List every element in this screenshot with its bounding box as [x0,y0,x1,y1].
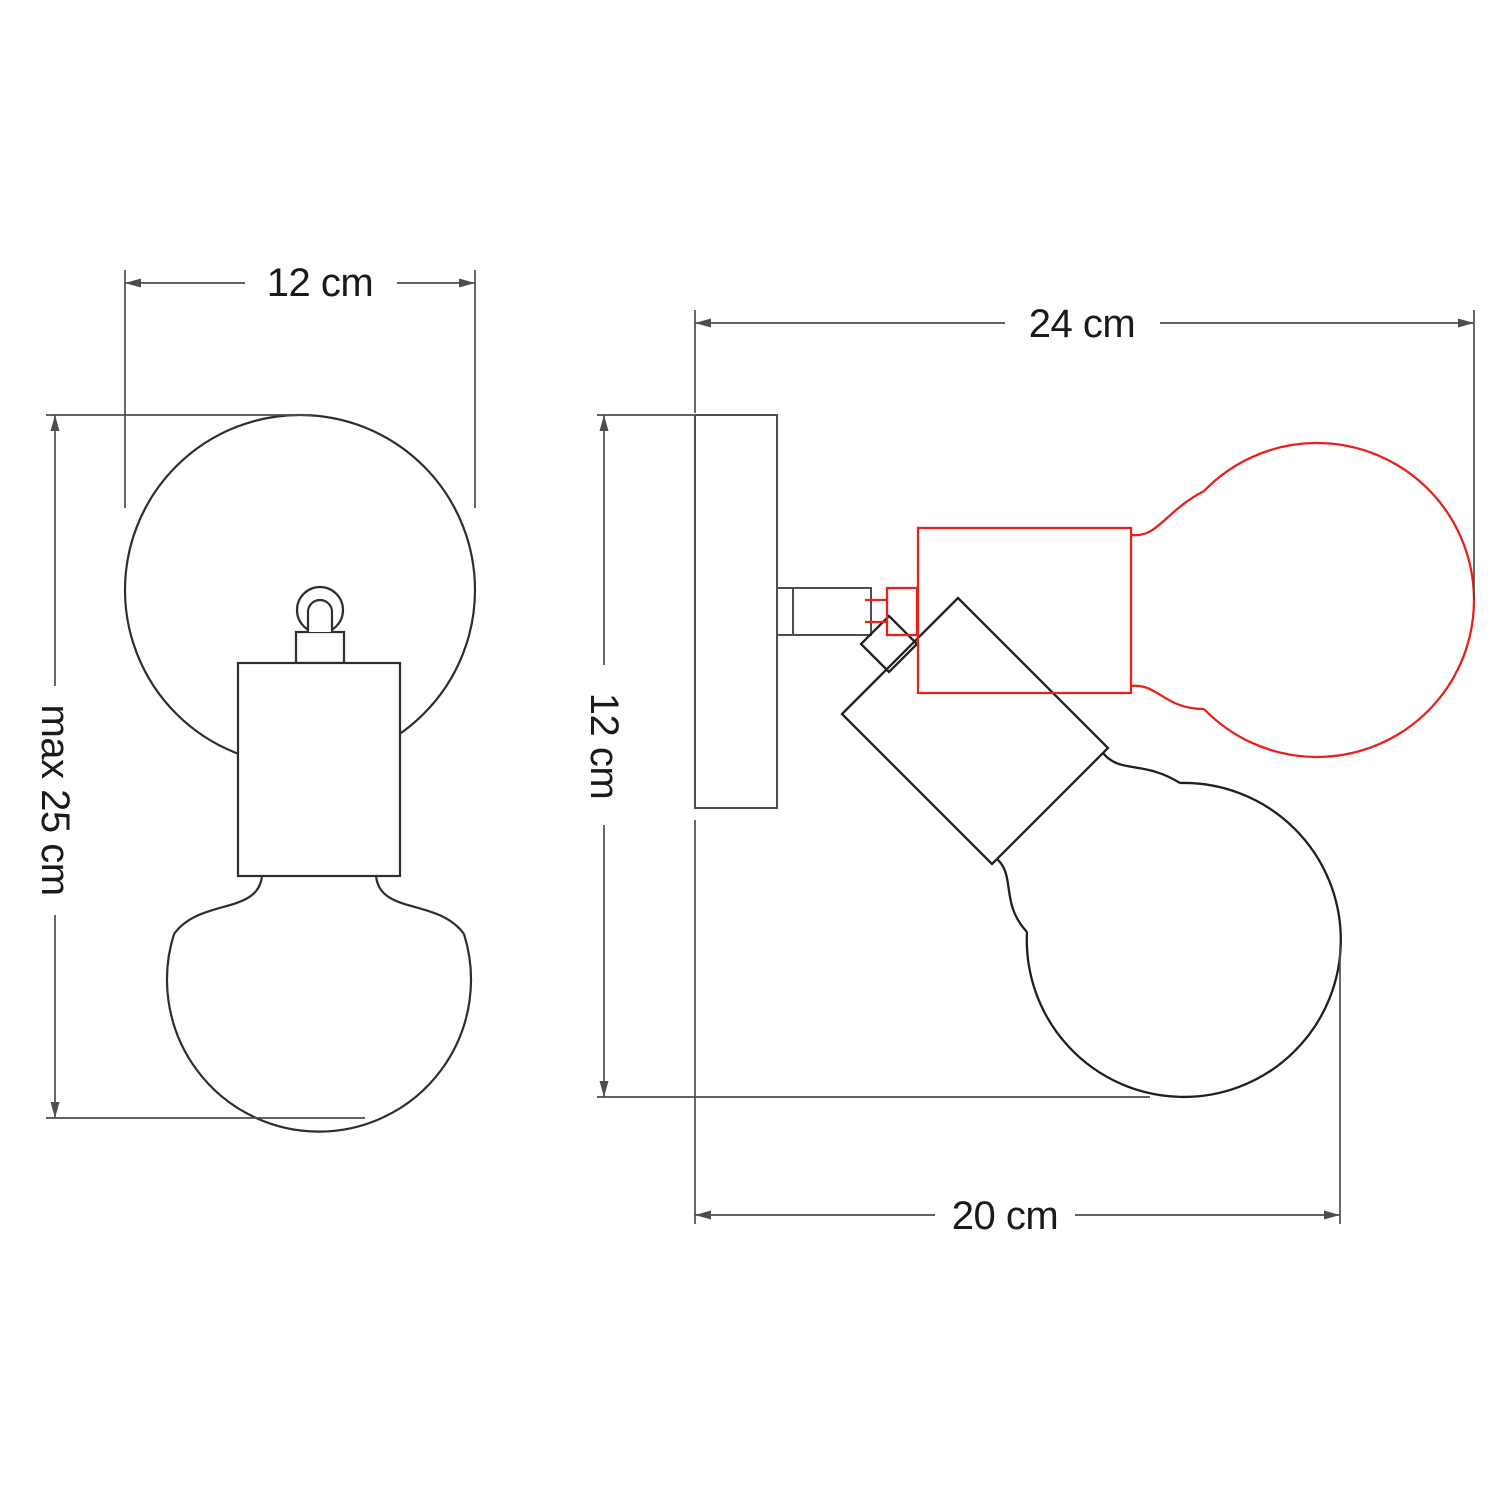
front-max-height-label: max 25 cm [33,704,77,895]
side-depth-dimension: 24 cm [695,302,1474,600]
front-view [125,415,475,1132]
front-width-dimension: 12 cm [125,261,475,508]
side-bulb-globe-down [1027,783,1341,1097]
side-bulb-neck-lower [997,859,1027,932]
front-width-label: 12 cm [267,261,373,305]
arrow-up-icon [600,415,609,431]
front-socket-neck [296,632,344,663]
arrow-left-icon [125,279,141,288]
alt-bulb-globe-up [1204,443,1474,757]
side-bulb-neck-upper [1103,753,1180,783]
front-bulb-neck-right [376,876,464,934]
side-plate-height-label: 12 cm [582,693,626,799]
alt-bulb-neck-lower [1131,686,1204,709]
arrow-right-icon [459,279,475,288]
side-wall-plate [695,415,777,808]
diagram-page: 12 cm max 25 cm [0,0,1500,1500]
side-view [695,415,1474,1097]
side-projection-dimension: 20 cm [695,820,1340,1238]
side-projection-label: 20 cm [952,1194,1058,1238]
front-ring-arch [308,600,332,632]
arrow-right-icon [1458,319,1474,328]
front-socket-body [238,663,400,876]
side-depth-label: 24 cm [1029,302,1135,346]
wall-lamp-dimension-diagram: 12 cm max 25 cm [0,0,1500,1500]
alt-bulb-neck-upper [1131,491,1204,535]
side-socket-body-down [842,598,1108,864]
arrow-left-icon [695,1211,711,1220]
arrow-up-icon [51,415,60,431]
arrow-left-icon [695,319,711,328]
front-bulb-neck-left [174,876,262,934]
arrow-right-icon [1324,1211,1340,1220]
arrow-down-icon [51,1102,60,1118]
arrow-down-icon [600,1081,609,1097]
side-pivot-arm [777,588,871,635]
front-bulb-globe [167,934,471,1132]
